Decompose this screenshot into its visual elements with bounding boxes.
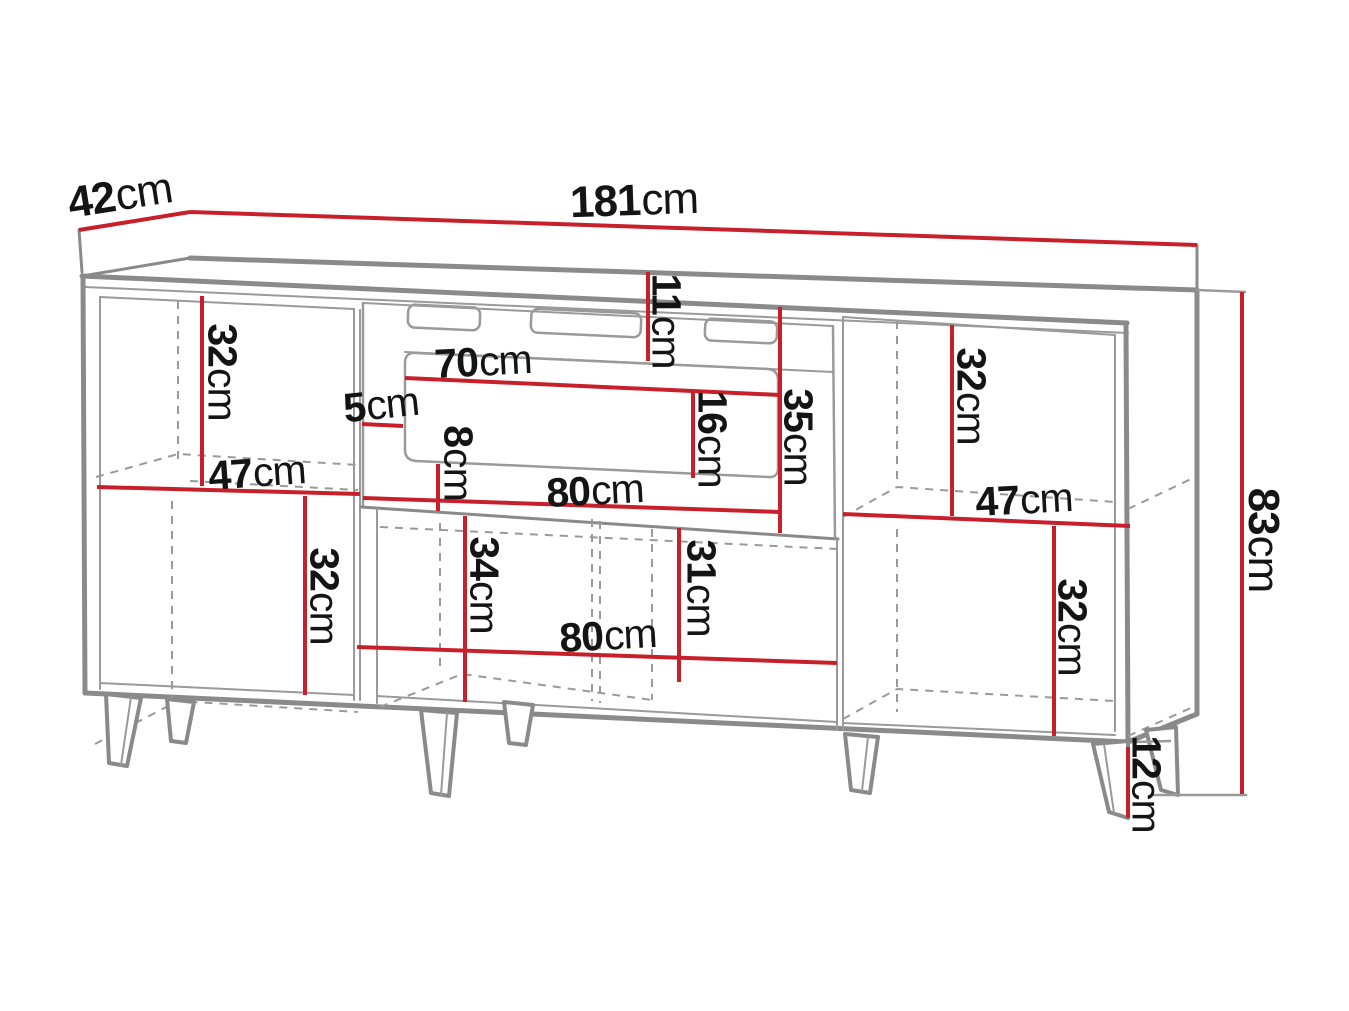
dimension-label-side-gap: 5cm [341, 381, 420, 430]
leg-back-left [167, 699, 194, 743]
dimension-label-mid-right-h: 31cm [681, 539, 722, 636]
leg-front-midleft [421, 710, 457, 796]
legs [106, 694, 1178, 818]
dimension-label-mid-w: 80cm [558, 613, 657, 659]
leg-back-midleft [504, 702, 533, 745]
dimension-label-width: 181cm [569, 177, 699, 225]
dimension-label-insert-h: 35cm [778, 388, 819, 485]
dimension-label-right-w: 47cm [974, 477, 1073, 523]
dimension-label-vent-gap: 11cm [646, 274, 687, 369]
dimension-label-window-w: 70cm [433, 339, 532, 385]
dimension-label-left-bottom-h: 32cm [304, 547, 345, 644]
dimension-label-insert-w: 80cm [545, 468, 644, 514]
cabinet-line-drawing [0, 0, 1349, 1011]
dimension-label-leg-height: 12cm [1126, 735, 1167, 832]
dimension-label-left-top-h: 32cm [202, 323, 243, 420]
vent-slot-left [407, 304, 480, 330]
dimension-label-right-top-h: 32cm [951, 347, 992, 444]
leg-front-left [106, 694, 141, 766]
dimension-label-mid-left-h: 34cm [464, 536, 505, 633]
dimension-label-under-gap: 8cm [438, 425, 479, 500]
leg-front-midright [845, 734, 878, 793]
dimension-label-height: 83cm [1241, 488, 1285, 593]
furniture-dimension-diagram: 42cm 181cm 83cm 12cm 32cm 47cm 32cm 11cm… [0, 0, 1349, 1011]
dimension-label-right-bottom-h: 32cm [1052, 578, 1093, 675]
dimension-label-left-w: 47cm [207, 449, 307, 497]
dimension-label-window-h: 16cm [692, 390, 733, 487]
